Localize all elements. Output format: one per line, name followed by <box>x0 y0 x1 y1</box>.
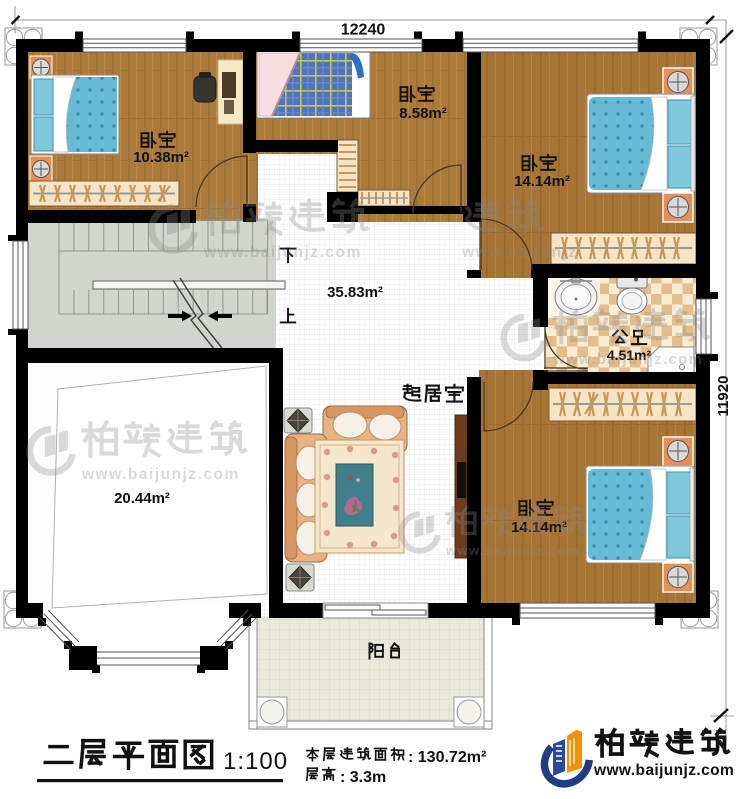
svg-text:11920: 11920 <box>715 376 732 417</box>
svg-text:: 3.3m: : 3.3m <box>340 769 386 786</box>
svg-text:: 130.72m²: : 130.72m² <box>408 749 486 766</box>
svg-text:www.baijunjz: www.baijunjz <box>461 244 578 261</box>
svg-text:1:100: 1:100 <box>223 748 288 775</box>
svg-text:www.baijunjz.com: www.baijunjz.com <box>203 244 362 261</box>
svg-text:www.baijunjz.com: www.baijunjz.com <box>445 543 580 558</box>
svg-text:8.58m²: 8.58m² <box>399 105 447 122</box>
svg-text:12240: 12240 <box>341 22 386 39</box>
svg-text:10.38m²: 10.38m² <box>133 149 189 166</box>
svg-text:35.83m²: 35.83m² <box>327 284 383 301</box>
svg-text:www.baijunjz.com: www.baijunjz.com <box>593 762 734 779</box>
svg-text:www.baijunjz.com: www.baijunjz.com <box>552 352 703 368</box>
svg-text:20.44m²: 20.44m² <box>114 490 170 507</box>
svg-text:www.baijunjz.com: www.baijunjz.com <box>81 466 240 483</box>
svg-text:14.14m²: 14.14m² <box>514 173 570 190</box>
